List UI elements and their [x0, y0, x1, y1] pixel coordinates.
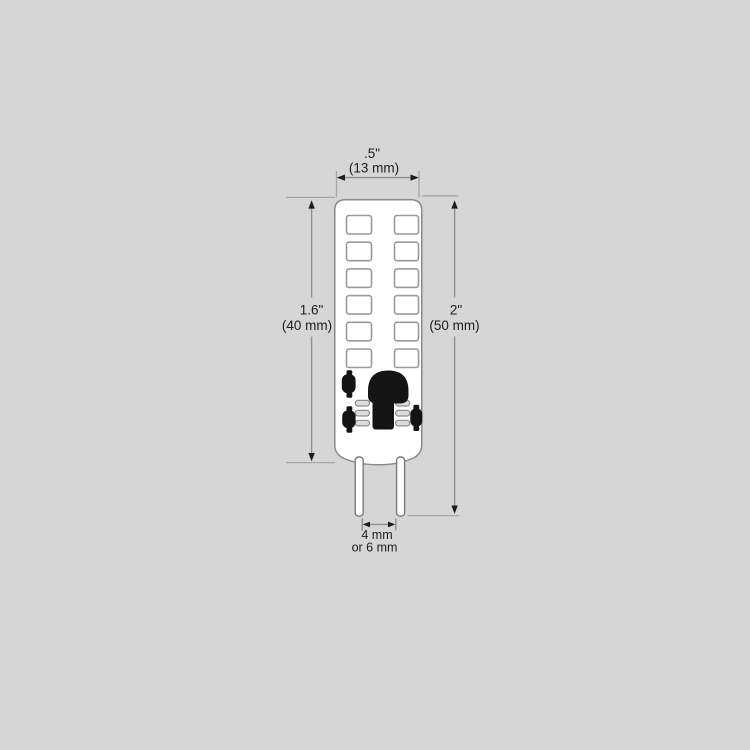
led-chip [395, 269, 419, 288]
capacitor-stub [347, 393, 353, 398]
pin-spacing-alt-label: or 6 mm [352, 541, 398, 555]
led-chip [347, 242, 372, 261]
led-chip [395, 349, 419, 368]
capacitor-body [410, 408, 422, 426]
led-chip [347, 322, 372, 341]
overall-height-label-metric: (50 mm) [429, 318, 479, 333]
body-height-label-metric: (40 mm) [282, 318, 332, 333]
lead-pill [396, 420, 410, 426]
lead-pill [396, 410, 410, 416]
capacitor-body [342, 374, 356, 393]
capacitor-body [342, 410, 355, 428]
led-chip [347, 349, 372, 368]
pin-left [355, 457, 363, 516]
led-chip [395, 322, 419, 341]
led-chip [395, 216, 419, 235]
led-chip [395, 242, 419, 261]
led-chip [347, 216, 372, 235]
led-chip [395, 296, 419, 315]
driver-stem [373, 396, 395, 430]
led-chip [347, 296, 372, 315]
diagram-canvas: .5" (13 mm) 1.6" (40 mm) 2" (50 mm) [0, 0, 750, 750]
pin-right [397, 457, 405, 516]
lead-pill [355, 400, 369, 406]
overall-height-label-inches: 2" [450, 303, 463, 318]
led-chip [347, 269, 372, 288]
width-label-inches: .5" [364, 146, 380, 161]
bulb-dimension-diagram: .5" (13 mm) 1.6" (40 mm) 2" (50 mm) [0, 0, 750, 750]
body-height-label-inches: 1.6" [300, 303, 324, 318]
width-label-metric: (13 mm) [349, 161, 399, 176]
lead-pill [355, 410, 369, 416]
lead-pill [355, 420, 369, 426]
